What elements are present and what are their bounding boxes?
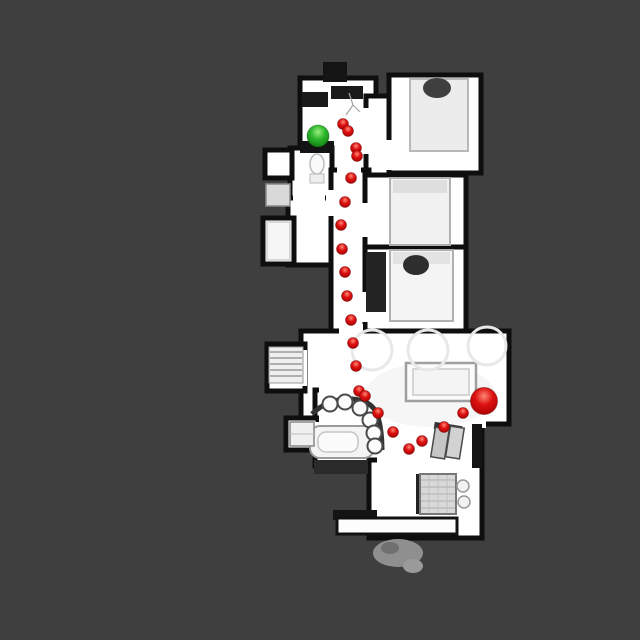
path-waypoint	[346, 173, 357, 184]
toilet-tank	[310, 174, 324, 183]
path-waypoint	[343, 126, 354, 137]
toilet	[310, 154, 324, 174]
coffee-table-top	[413, 369, 469, 395]
start-marker	[307, 125, 329, 147]
couch-cushion-seat	[318, 432, 358, 452]
closet-dark	[366, 252, 386, 312]
path-waypoint	[342, 291, 353, 302]
rail-bump	[458, 496, 470, 508]
wall-chunk	[472, 424, 482, 468]
path-waypoint	[340, 267, 351, 278]
floorplan-svg	[0, 0, 640, 640]
cabinet	[331, 86, 363, 99]
path-waypoint	[351, 361, 362, 372]
path-waypoint	[352, 151, 363, 162]
path-waypoint	[458, 408, 469, 419]
doorway-opening	[293, 192, 325, 202]
scan-debris	[403, 559, 423, 573]
closet-left	[265, 150, 292, 178]
path-waypoint	[417, 436, 428, 447]
couch-headrest	[368, 439, 383, 454]
pillow	[393, 180, 447, 193]
porch-step	[337, 518, 457, 534]
shadow-notch	[314, 460, 368, 474]
couch-headrest	[323, 397, 338, 412]
path-waypoint	[340, 197, 351, 208]
path-waypoint	[360, 391, 371, 402]
bag-on-bed	[403, 255, 429, 275]
path-waypoint	[373, 408, 384, 419]
goal-marker	[471, 388, 498, 415]
shelf	[266, 184, 290, 206]
path-waypoint	[388, 427, 399, 438]
doorway-opening	[363, 108, 379, 154]
chimney-block	[323, 62, 347, 82]
cabinet	[302, 92, 328, 107]
shower-tray	[267, 222, 290, 260]
path-waypoint	[337, 244, 348, 255]
scan-debris	[381, 542, 399, 554]
path-waypoint	[346, 315, 357, 326]
bed-notch	[423, 78, 451, 98]
path-waypoint	[336, 220, 347, 231]
doorway-opening	[326, 190, 336, 216]
path-waypoint	[439, 422, 450, 433]
rail-bump	[457, 480, 469, 492]
path-waypoint	[404, 444, 415, 455]
couch-headrest	[338, 395, 353, 410]
path-waypoint	[348, 338, 359, 349]
doorway-opening	[360, 203, 372, 237]
scene-background	[0, 0, 640, 640]
doorway-opening	[384, 140, 394, 170]
